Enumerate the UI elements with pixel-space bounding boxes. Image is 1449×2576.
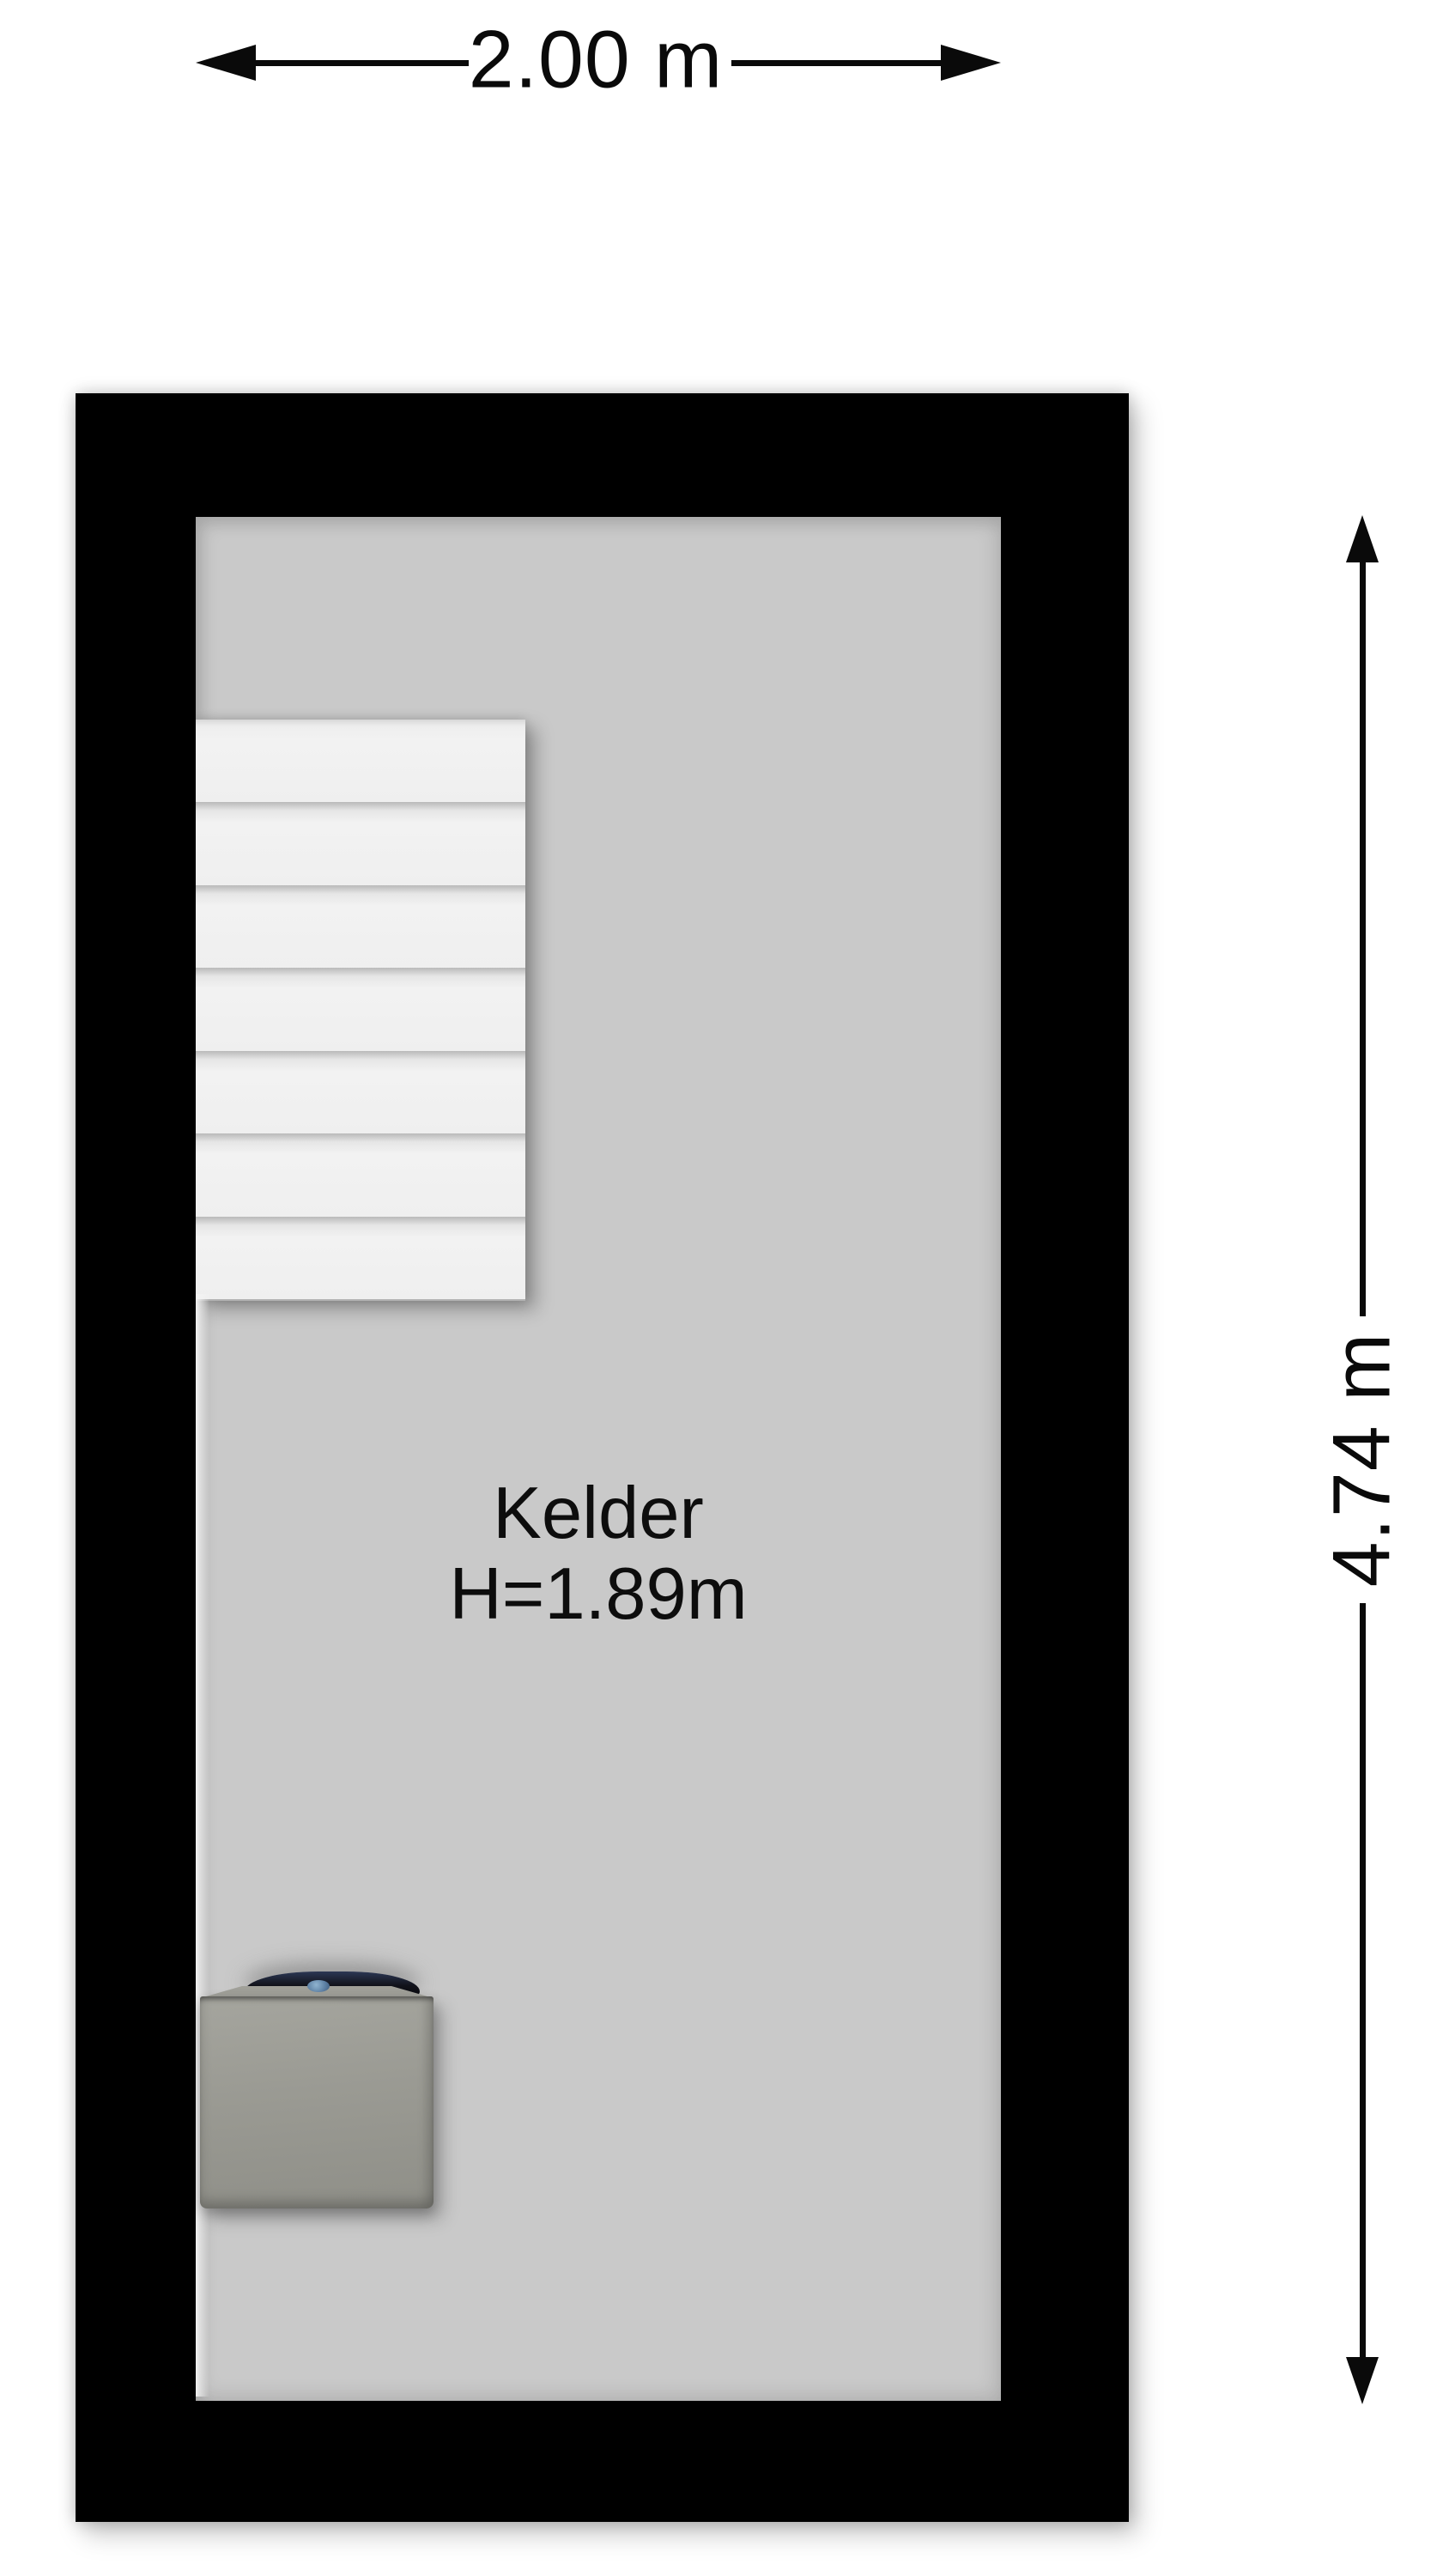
dimension-line-left (254, 60, 469, 66)
arrow-up-icon (1346, 515, 1379, 562)
stair-tread (196, 1133, 525, 1216)
boiler-front-face (200, 1996, 433, 2208)
height-dimension-label: 4.74 m (1322, 1333, 1404, 1587)
staircase (196, 720, 525, 1301)
floorplan-canvas: 2.00 m Kelder H=1.89m (0, 0, 1449, 2576)
stair-tread (196, 968, 525, 1050)
room-floor: Kelder H=1.89m (196, 517, 1001, 2401)
arrow-left-icon (196, 45, 256, 81)
dimension-line-right (731, 60, 943, 66)
boiler-indicator-light (307, 1980, 330, 1992)
stair-tread (196, 802, 525, 884)
stair-tread (196, 1051, 525, 1133)
dimension-line-top (1360, 561, 1366, 1316)
stair-tread (196, 720, 525, 802)
dimension-line-bottom (1360, 1603, 1366, 2357)
wall-highlight (196, 1294, 209, 2397)
boiler-unit (197, 1949, 437, 2212)
stair-tread (196, 1217, 525, 1299)
arrow-right-icon (941, 45, 1001, 81)
basement-walls: Kelder H=1.89m (76, 393, 1129, 2522)
arrow-down-icon (1346, 2357, 1379, 2404)
stair-tread (196, 885, 525, 968)
width-dimension-label: 2.00 m (469, 20, 723, 101)
room-ceiling-height: H=1.89m (196, 1554, 1001, 1635)
room-name: Kelder (196, 1473, 1001, 1554)
room-label: Kelder H=1.89m (196, 1473, 1001, 1635)
